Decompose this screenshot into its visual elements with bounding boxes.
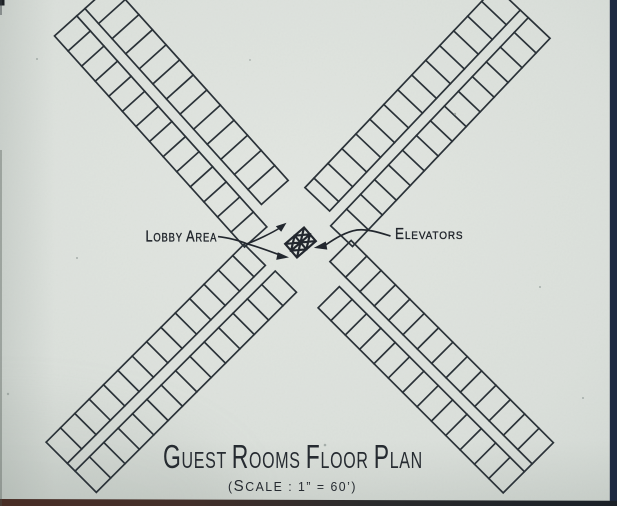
svg-text:(SCALE : 1” = 60’): (SCALE : 1” = 60’) [228,478,357,495]
svg-text:ELEVATORS: ELEVATORS [395,226,463,243]
svg-text:LOBBY AREA: LOBBY AREA [146,228,218,245]
